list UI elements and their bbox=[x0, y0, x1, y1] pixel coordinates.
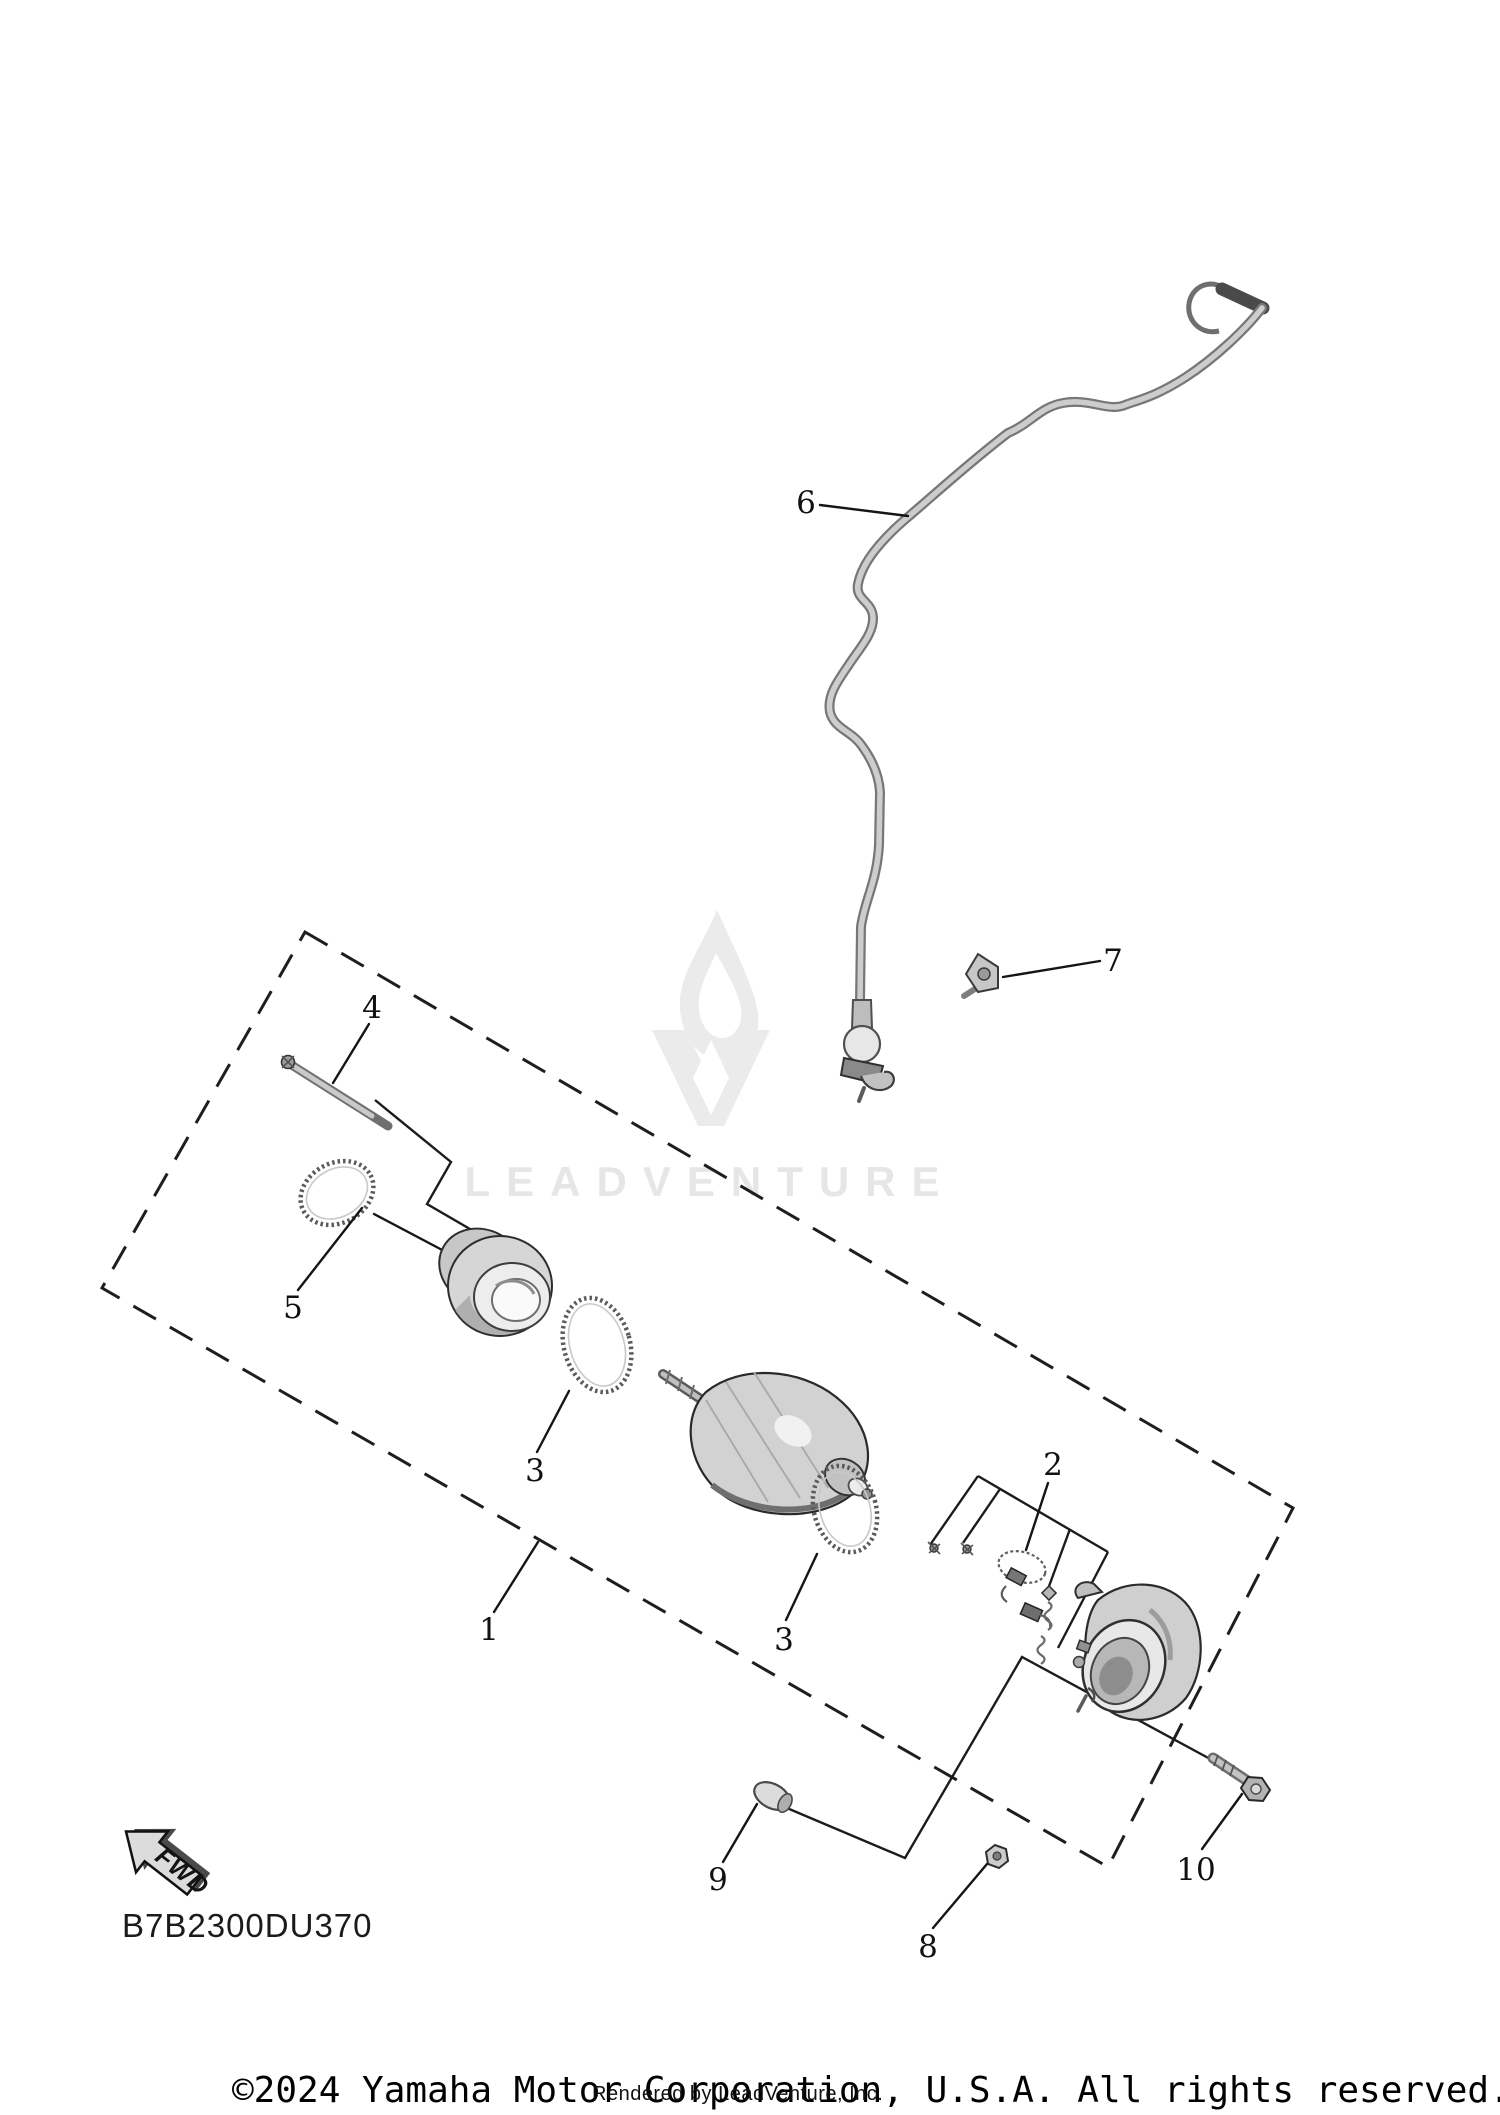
diagram-code: B7B2300DU370 bbox=[122, 1907, 373, 1944]
brush-spring-1 bbox=[1045, 1602, 1052, 1630]
starter-armature bbox=[663, 1370, 872, 1514]
starter-rear-cover bbox=[1068, 1582, 1201, 1725]
brush-2 bbox=[1020, 1603, 1042, 1622]
label-part-2: 2 bbox=[1043, 1447, 1063, 1483]
label-part-1: 1 bbox=[479, 1612, 499, 1648]
label-part-3-right: 3 bbox=[774, 1622, 794, 1658]
part-7-bolt bbox=[964, 954, 998, 996]
brush-terminal bbox=[1042, 1586, 1056, 1600]
starting-motor-exploded-diagram: LEADVENTURE bbox=[0, 0, 1500, 2115]
brush-spring-2 bbox=[1038, 1636, 1045, 1664]
part-6-cable bbox=[829, 284, 1263, 1101]
label-part-3-left: 3 bbox=[525, 1453, 545, 1489]
fwd-label: FWD bbox=[150, 1842, 214, 1901]
starter-front-cover bbox=[425, 1214, 552, 1336]
part-8-nut bbox=[986, 1845, 1008, 1868]
part-3-o-ring-left bbox=[552, 1290, 642, 1400]
label-part-5: 5 bbox=[283, 1290, 303, 1326]
o-ring-to-cover-line bbox=[374, 1214, 446, 1252]
label-part-7: 7 bbox=[1103, 943, 1123, 979]
fwd-direction-arrow: FWD bbox=[110, 1805, 224, 1912]
watermark-text: LEADVENTURE bbox=[464, 1158, 955, 1205]
part-9-pin bbox=[750, 1776, 795, 1815]
part-2-brush-assembly bbox=[928, 1476, 1108, 1664]
part-number-labels: 6 7 4 5 3 1 3 2 9 8 10 bbox=[283, 485, 1216, 1965]
cable-terminal-boot bbox=[841, 1000, 894, 1101]
leader-lines bbox=[298, 505, 1242, 1928]
label-part-4: 4 bbox=[362, 990, 382, 1026]
label-part-6: 6 bbox=[796, 485, 816, 521]
leadventure-flame-v-logo-icon bbox=[652, 910, 770, 1126]
brush-screw-2 bbox=[961, 1543, 973, 1555]
parts-diagram-page: LEADVENTURE bbox=[0, 0, 1500, 2115]
label-part-8: 8 bbox=[918, 1929, 938, 1965]
brush-1 bbox=[1006, 1568, 1026, 1586]
brush-screw-1 bbox=[928, 1542, 940, 1554]
label-part-9: 9 bbox=[708, 1862, 728, 1898]
part-4-bolt bbox=[282, 1056, 389, 1127]
leadventure-watermark: LEADVENTURE bbox=[464, 910, 955, 1205]
rendered-by-text: Rendered by LeadVenture, Inc. bbox=[592, 2083, 883, 2105]
part-5-o-ring bbox=[289, 1149, 384, 1238]
label-part-10: 10 bbox=[1176, 1852, 1215, 1888]
